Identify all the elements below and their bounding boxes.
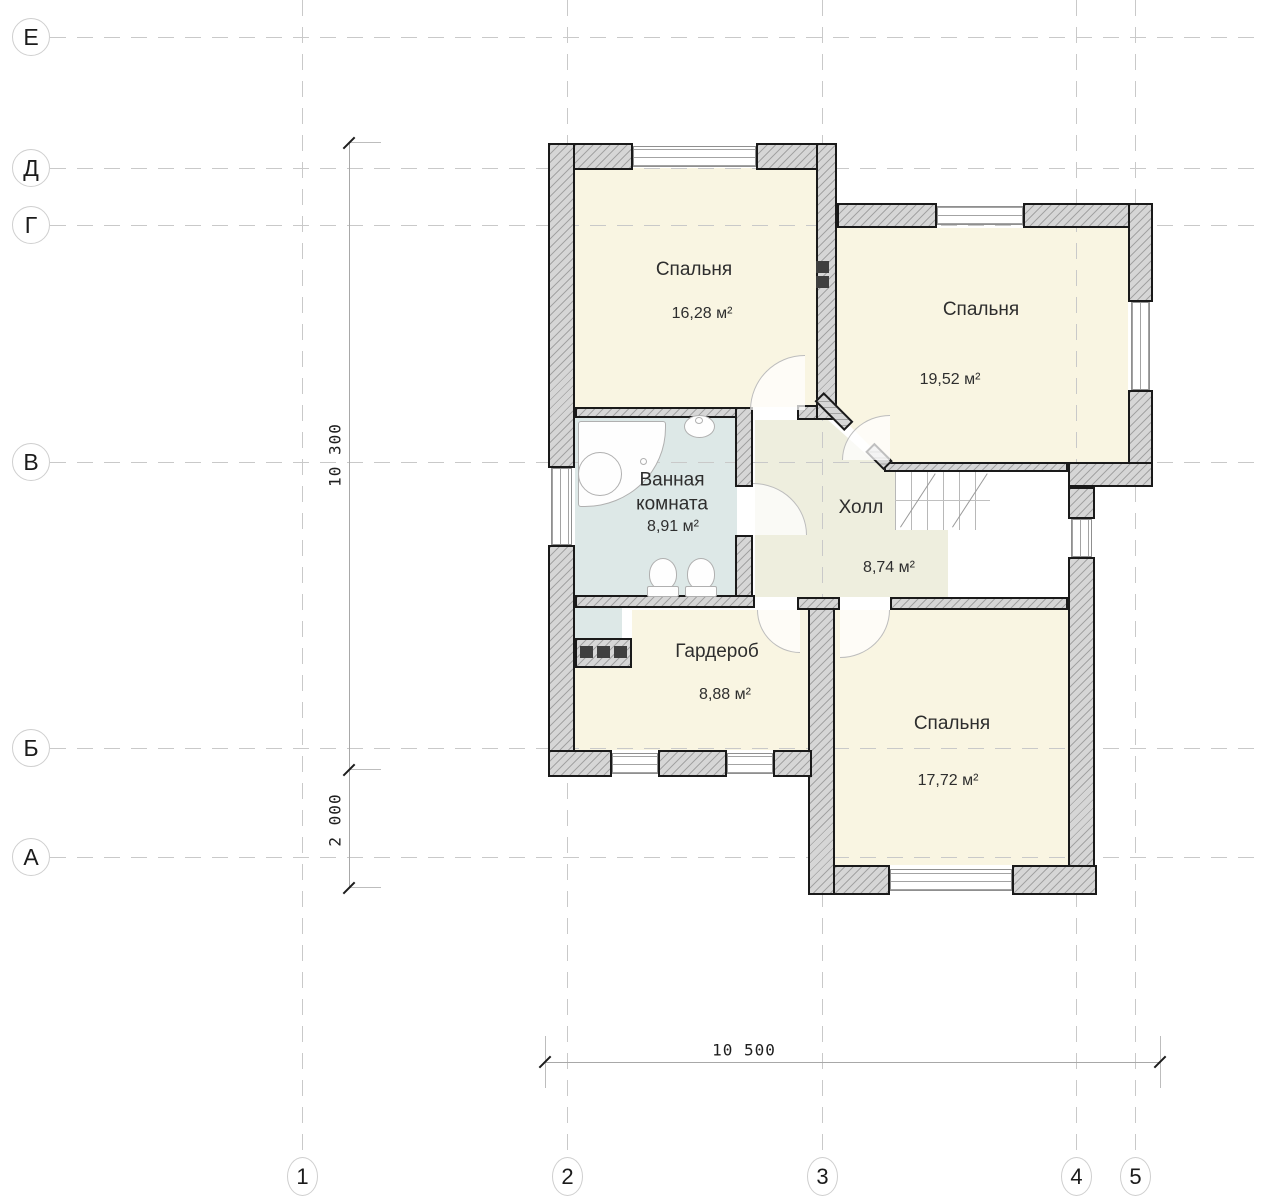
grid-label: 5: [1129, 1164, 1141, 1190]
wall-bedroom-3-right-upper: [1068, 487, 1095, 519]
floor-plan-canvas: Е Д Г В Б А 1 2 3 4 5: [0, 0, 1261, 1200]
dimension-value-10500: 10 500: [712, 1041, 776, 1060]
vent-shaft-icon: [614, 646, 627, 658]
room-area-bedroom-1: 16,28 м²: [672, 305, 733, 323]
window-wardrobe-bottom-left: [612, 753, 658, 774]
vent-shaft-icon: [816, 276, 829, 288]
wall-wardrobe-bottom-3: [773, 750, 812, 777]
room-label-hall: Холл: [839, 497, 884, 519]
grid-axis-row-d: [50, 168, 1261, 169]
wall-bedroom-2-right-upper: [1128, 203, 1153, 302]
bathtub-drain-icon: [640, 458, 647, 465]
room-area-hall: 8,74 м²: [863, 559, 915, 577]
grid-label: 3: [816, 1164, 828, 1190]
dimension-value-10300: 10 300: [326, 423, 345, 487]
grid-bubble-col-2: 2: [552, 1157, 583, 1196]
wall-bedroom-2-bottom: [1068, 462, 1153, 487]
room-area-bathroom: 8,91 м²: [647, 518, 699, 536]
wall-hall-bottom-right: [890, 597, 1068, 610]
window-wardrobe-bottom-right: [727, 753, 773, 774]
wall-hall-bottom-left: [797, 597, 840, 610]
dimension-extension: [349, 142, 381, 143]
grid-label: А: [23, 844, 38, 871]
room-label-bedroom-3: Спальня: [914, 713, 990, 735]
wall-left-upper: [548, 143, 575, 468]
grid-label: Д: [23, 155, 39, 182]
grid-label: 1: [296, 1164, 308, 1190]
grid-bubble-col-4: 4: [1061, 1157, 1092, 1196]
window-bedroom-2-top: [937, 206, 1023, 225]
grid-label: Б: [23, 735, 38, 762]
wall-bedroom-3-bottom-right: [1012, 865, 1097, 895]
sink-faucet-icon: [695, 417, 703, 424]
wall-bathroom-top: [575, 407, 745, 418]
grid-axis-col-5: [1135, 0, 1136, 1150]
wall-bedroom-2-top-left: [837, 203, 937, 228]
room-label-bedroom-2: Спальня: [943, 299, 1019, 321]
vent-shaft-icon: [597, 646, 610, 658]
dimension-extension: [349, 887, 381, 888]
grid-bubble-row-a: А: [12, 838, 50, 876]
window-bedroom-1-top: [633, 146, 756, 167]
grid-label: 4: [1070, 1164, 1082, 1190]
room-label-wardrobe: Гардероб: [675, 641, 759, 663]
dimension-line-horizontal: [545, 1062, 1160, 1063]
dimension-line-vertical: [349, 143, 350, 888]
grid-bubble-row-v: В: [12, 443, 50, 481]
grid-label: Г: [25, 212, 37, 239]
grid-bubble-col-3: 3: [807, 1157, 838, 1196]
grid-bubble-row-g: Г: [12, 206, 50, 244]
wall-stair-top: [884, 462, 1068, 472]
grid-bubble-row-d: Д: [12, 149, 50, 187]
room-area-bedroom-2: 19,52 м²: [920, 371, 981, 389]
grid-axis-col-1: [302, 0, 303, 1150]
window-bedroom-2-right: [1131, 302, 1150, 390]
stair-midline: [895, 500, 990, 501]
toilet-tank-icon: [685, 586, 717, 597]
room-label-bathroom: Ванная комната: [616, 468, 728, 516]
wall-wardrobe-bottom-2: [658, 750, 727, 777]
wall-bedroom-3-right-lower: [1068, 557, 1095, 895]
wall-bathroom-right-upper: [735, 407, 753, 487]
room-area-bedroom-3: 17,72 м²: [918, 772, 979, 790]
wall-left-lower: [548, 545, 575, 777]
dimension-extension: [349, 769, 381, 770]
grid-label: Е: [23, 24, 38, 51]
dimension-value-2000: 2 000: [326, 793, 345, 846]
room-label-bedroom-1: Спальня: [656, 259, 732, 281]
room-area-wardrobe: 8,88 м²: [699, 686, 751, 704]
grid-bubble-col-1: 1: [287, 1157, 318, 1196]
vent-shaft-icon: [580, 646, 593, 658]
window-bathroom-left: [551, 468, 572, 545]
grid-label: 2: [561, 1164, 573, 1190]
window-stair-right: [1071, 519, 1092, 557]
staircase: [895, 472, 990, 530]
grid-axis-row-e: [50, 37, 1261, 38]
grid-bubble-row-e: Е: [12, 18, 50, 56]
wall-bedroom-3-left: [808, 597, 835, 895]
vent-shaft-icon: [816, 261, 829, 273]
grid-label: В: [23, 449, 38, 476]
window-bedroom-3-bottom: [890, 869, 1012, 891]
wall-wardrobe-bottom-1: [548, 750, 612, 777]
grid-bubble-col-5: 5: [1120, 1157, 1151, 1196]
wall-bathroom-right-lower: [735, 535, 753, 597]
grid-bubble-row-b: Б: [12, 729, 50, 767]
toilet-tank-icon: [647, 586, 679, 597]
